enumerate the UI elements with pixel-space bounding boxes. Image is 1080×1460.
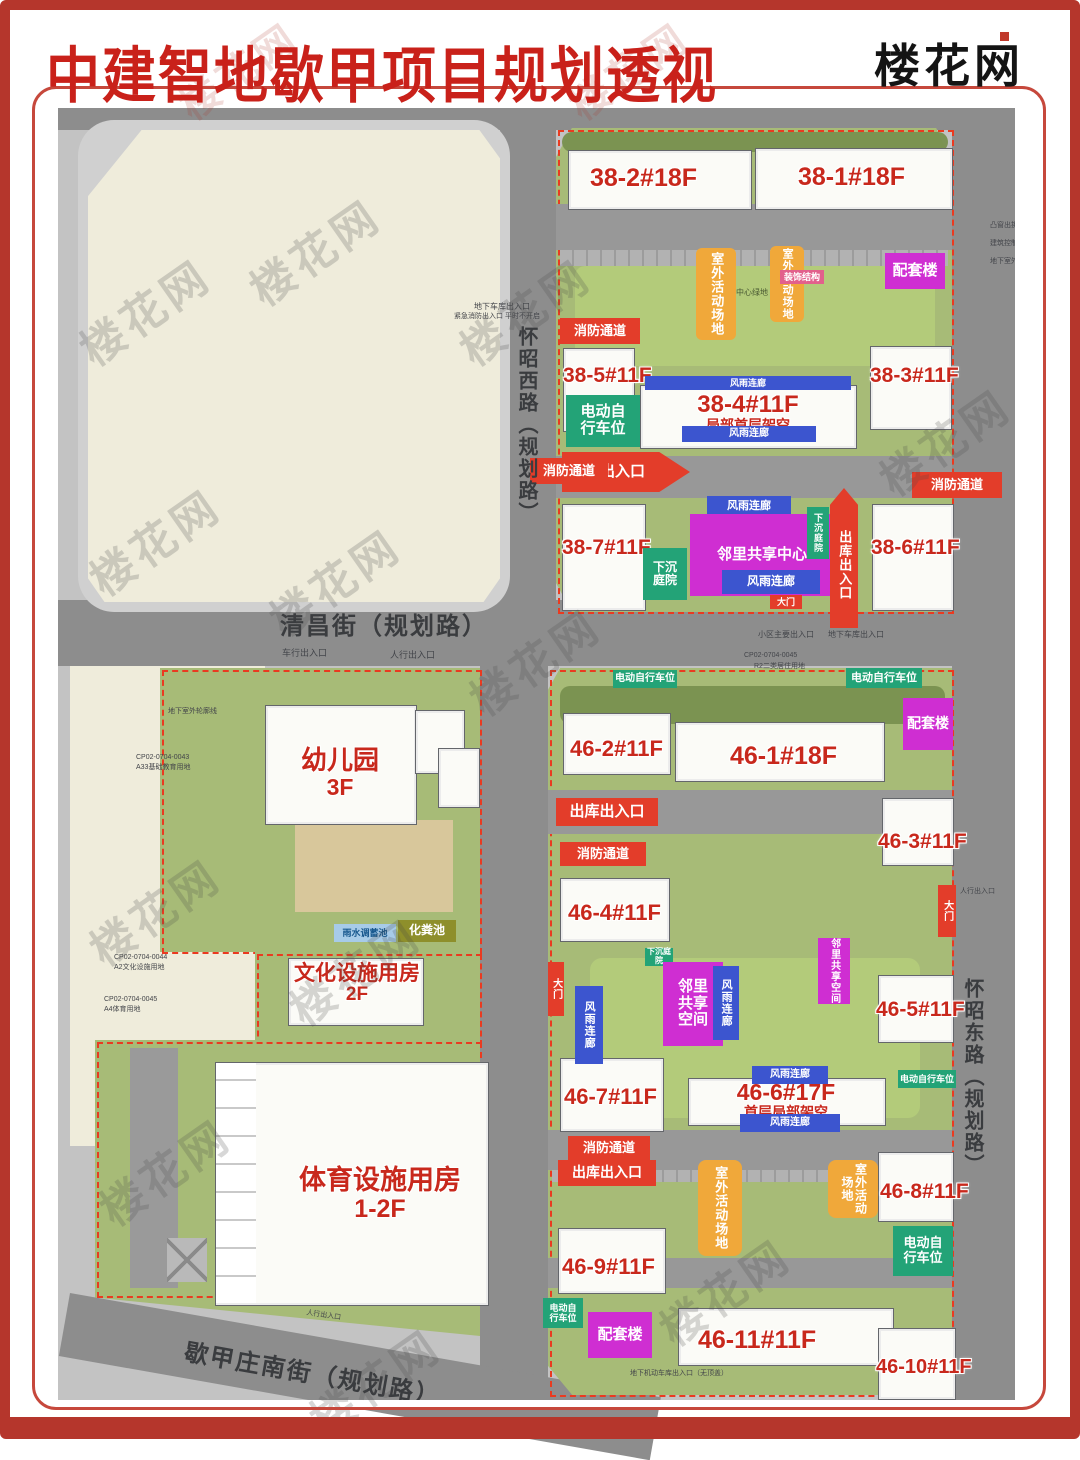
- fire-lane-badge: 消防通道: [560, 842, 646, 866]
- annex-building-badge: 配套楼: [903, 698, 953, 750]
- ebike-parking-badge: 电动自行车位: [566, 395, 640, 447]
- kindergarten-label: 幼儿园 3F: [275, 746, 405, 800]
- annotation: 地下车库出入口: [474, 302, 530, 312]
- building-label: 46-2#11F: [570, 736, 663, 762]
- annotation: 地下室外轮廓线: [168, 708, 217, 717]
- sports-label: 体育设施用房 1-2F: [280, 1166, 480, 1223]
- block-38-drive: [556, 204, 952, 250]
- building-label: 46-3#11F: [878, 830, 967, 854]
- building-label: 46-5#11F: [876, 998, 965, 1022]
- annotation: CP02-0704-0045: [104, 996, 157, 1005]
- annotation: A33基础教育用地: [136, 764, 190, 773]
- outdoor-activity-badge: 室外活动场地: [696, 248, 736, 340]
- annotation: 中心绿地: [736, 288, 768, 298]
- annotation: 人行出入口: [390, 650, 435, 661]
- site-plan-page: { "title": "中建智地歇甲项目规划透视", "logo": "楼花网"…: [0, 0, 1080, 1439]
- building-label: 38-5#11F: [563, 364, 652, 388]
- building-label: 46-9#11F: [562, 1254, 655, 1280]
- outdoor-activity-badge: 室外活动场地: [770, 246, 804, 322]
- neighborhood-space-badge: 邻里共享空间: [818, 938, 850, 1004]
- building-label: 46-8#11F: [880, 1180, 969, 1204]
- ebike-parking-label: 电动自行车位: [902, 1236, 944, 1265]
- annotation: 凸窗出挑: [990, 222, 1018, 231]
- rain-corridor-badge: 风雨连廊: [682, 426, 816, 442]
- ebike-parking-badge: 电动自行车位: [898, 1070, 956, 1088]
- decorative-structure-badge: 装饰结构: [780, 270, 824, 284]
- rain-storage-badge: 雨水调蓄池: [334, 924, 396, 942]
- gate-badge: 大门: [770, 595, 802, 609]
- kindergarten-floors: 3F: [275, 775, 405, 800]
- street-label-huaizhao-west: 怀昭西路（规划路）: [512, 326, 541, 600]
- rain-corridor-badge: 风雨连廊: [707, 496, 791, 516]
- sunken-courtyard-badge: 下沉庭院: [643, 548, 687, 600]
- building-label: 46-1#18F: [730, 742, 837, 771]
- rain-corridor-badge: 风雨连廊: [722, 570, 820, 594]
- gate-badge: 大门: [548, 962, 564, 1016]
- rain-corridor-badge: 风雨连廊: [713, 966, 739, 1040]
- ebike-parking-label: 电动自行车位: [549, 1303, 577, 1323]
- ebike-parking-badge: 电动自行车位: [543, 1298, 583, 1328]
- outdoor-activity-badge: 室外活动场地: [828, 1160, 878, 1218]
- building-label: 38-3#11F: [870, 364, 959, 388]
- rain-corridor-badge: 风雨连廊: [740, 1114, 840, 1132]
- building-label: 38-6#11F: [871, 536, 960, 560]
- sports-name: 体育设施用房: [280, 1166, 480, 1196]
- fire-lane-badge: 消防通道: [530, 458, 608, 484]
- annotation: R2二类居住用地: [754, 663, 805, 672]
- annex-building-badge: 配套楼: [885, 253, 945, 289]
- page-title: 中建智地歇甲项目规划透视: [46, 26, 718, 114]
- annotation: CP02-0704-0045: [744, 652, 797, 661]
- annex-building-badge: 配套楼: [588, 1312, 652, 1358]
- gate-badge: 大门: [938, 885, 956, 937]
- annotation: 地下机动车库出入口（无顶盖）: [630, 1370, 728, 1379]
- annotation: 紧急消防出入口 平时不开启: [454, 313, 540, 322]
- ebike-parking-badge: 电动自行车位: [846, 668, 922, 688]
- building-label: 38-2#18F: [590, 164, 697, 193]
- culture-name: 文化设施用房: [282, 962, 432, 985]
- ebike-parking-badge: 电动自行车位: [893, 1226, 953, 1276]
- annotation: 小区主要出入口: [758, 630, 814, 640]
- depot-exit-badge: 出库出入口: [558, 1160, 656, 1186]
- kindergarten-name: 幼儿园: [275, 746, 405, 775]
- annotation: 车行出入口: [282, 648, 327, 659]
- road-mid-vertical: [480, 666, 548, 1400]
- culture-floors: 2F: [282, 985, 432, 1006]
- annotation: CP02-0704-0043: [136, 754, 189, 763]
- ebike-parking-badge: 电动自行车位: [613, 670, 677, 688]
- sports-building-rooms: [216, 1063, 256, 1303]
- fire-lane-badge: 消防通道: [568, 1136, 650, 1160]
- building-label: 46-4#11F: [568, 900, 661, 926]
- sports-hatch-area: [167, 1238, 207, 1282]
- sunken-courtyard-badge: 下沉庭院: [807, 507, 829, 559]
- building-label: 46-7#11F: [564, 1084, 657, 1110]
- building-label: 38-1#18F: [798, 163, 905, 192]
- ebike-parking-label: 电动自行车位: [578, 404, 628, 438]
- margin-bottom: [30, 1400, 1048, 1408]
- rain-corridor-badge: 风雨连廊: [645, 376, 851, 390]
- vacant-parcel: [88, 130, 500, 602]
- building-label: 38-7#11F: [562, 536, 651, 560]
- sunken-courtyard-label: 下沉庭院: [652, 561, 678, 588]
- logo-seal-icon: [1000, 32, 1009, 41]
- neighborhood-space-label: 邻里共享空间: [676, 979, 710, 1029]
- septic-tank-badge: 化粪池: [398, 920, 456, 942]
- outdoor-activity-badge: 室外活动场地: [698, 1160, 742, 1256]
- master-plan-map: 38-2#18F 38-1#18F 38-5#11F 38-4#11F 局部首层…: [30, 108, 1048, 1408]
- annotation: 人行出入口: [960, 888, 995, 897]
- building-label: 46-10#11F: [876, 1356, 972, 1379]
- margin-right: [1015, 108, 1048, 1408]
- depot-exit-arrow: 出库出入口: [830, 488, 858, 628]
- depot-exit-badge: 出库出入口: [556, 798, 658, 826]
- culture-label: 文化设施用房 2F: [282, 962, 432, 1006]
- annotation: A2文化设施用地: [114, 964, 165, 973]
- annotation: CP02-0704-0044: [114, 954, 167, 963]
- kindergarten-playground: [295, 820, 453, 912]
- rain-corridor-badge: 风雨连廊: [752, 1066, 828, 1084]
- fire-lane-badge: 消防通道: [560, 318, 640, 344]
- margin-left: [30, 108, 58, 1408]
- building-label: 46-11#11F: [698, 1326, 816, 1355]
- annotation: 地下车库出入口: [828, 630, 884, 640]
- building-label-main: 38-4#11F: [642, 392, 854, 418]
- annotation: A4体育用地: [104, 1006, 141, 1015]
- fire-lane-badge: 消防通道: [912, 472, 1002, 498]
- street-label-huaizhao-east: 怀昭东路（规划路）: [958, 978, 987, 1262]
- street-label-qingchang: 清昌街（规划路）: [280, 606, 488, 641]
- kindergarten-building-annex: [438, 748, 480, 808]
- sports-floors: 1-2F: [280, 1196, 480, 1224]
- rain-corridor-badge: 风雨连廊: [575, 986, 603, 1064]
- building-38-3: [870, 346, 952, 430]
